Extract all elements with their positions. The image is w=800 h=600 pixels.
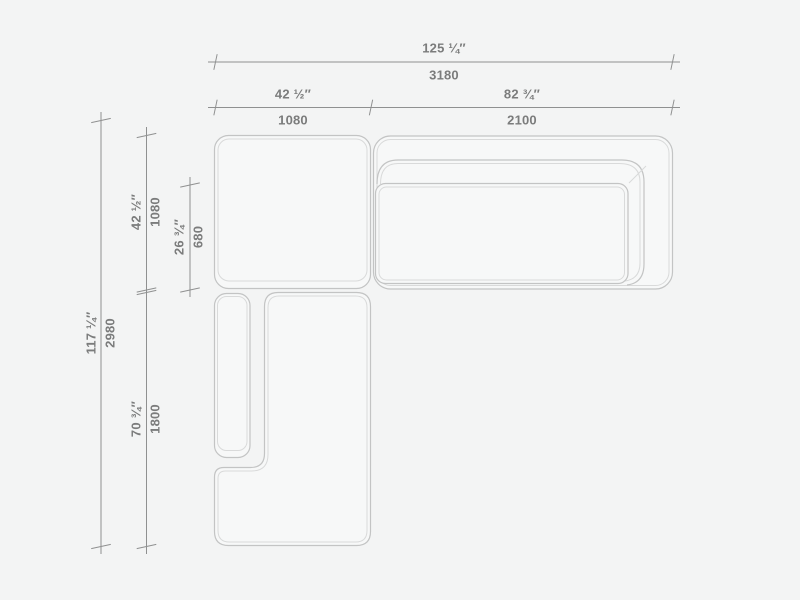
seat-cushion: [376, 184, 629, 284]
ottoman-outline: [215, 136, 371, 289]
dim-overall-depth-mm: 2980: [103, 318, 118, 348]
dim-left-module-width-inches: 42 ½″: [275, 87, 311, 102]
sofa-plan-drawing: [0, 0, 800, 600]
dim-left-module-width-mm: 1080: [278, 113, 308, 128]
dim-right-module-width-inches: 82 ¾″: [504, 87, 540, 102]
dim-right-module-width-mm: 2100: [507, 113, 537, 128]
dim-overall-width-mm: 3180: [429, 68, 459, 83]
dim-seat-depth-inches: 26 ¾″: [172, 219, 187, 255]
dimension-lines: [91, 54, 680, 554]
dim-seat-depth-mm: 680: [191, 226, 206, 248]
dim-top-module-depth-mm: 1080: [148, 197, 163, 227]
dim-chaise-length-inches: 70 ¾″: [129, 401, 144, 437]
chaise-armrest: [215, 294, 251, 458]
dim-overall-width-inches: 125 ¼″: [422, 41, 466, 56]
armrest-outline: [215, 294, 251, 458]
dim-chaise-length-mm: 1800: [148, 404, 163, 434]
module-chaise: [215, 293, 371, 546]
furniture-dimension-diagram: 125 ¼″ 3180 42 ½″ 1080 82 ¾″ 2100 117 ¼″…: [0, 0, 800, 600]
module-sofa-right: [374, 136, 673, 289]
module-ottoman: [215, 136, 371, 289]
dim-overall-depth-inches: 117 ¼″: [84, 312, 99, 355]
dim-top-module-depth-inches: 42 ½″: [129, 194, 144, 230]
seat-cushion-outline: [376, 184, 629, 284]
